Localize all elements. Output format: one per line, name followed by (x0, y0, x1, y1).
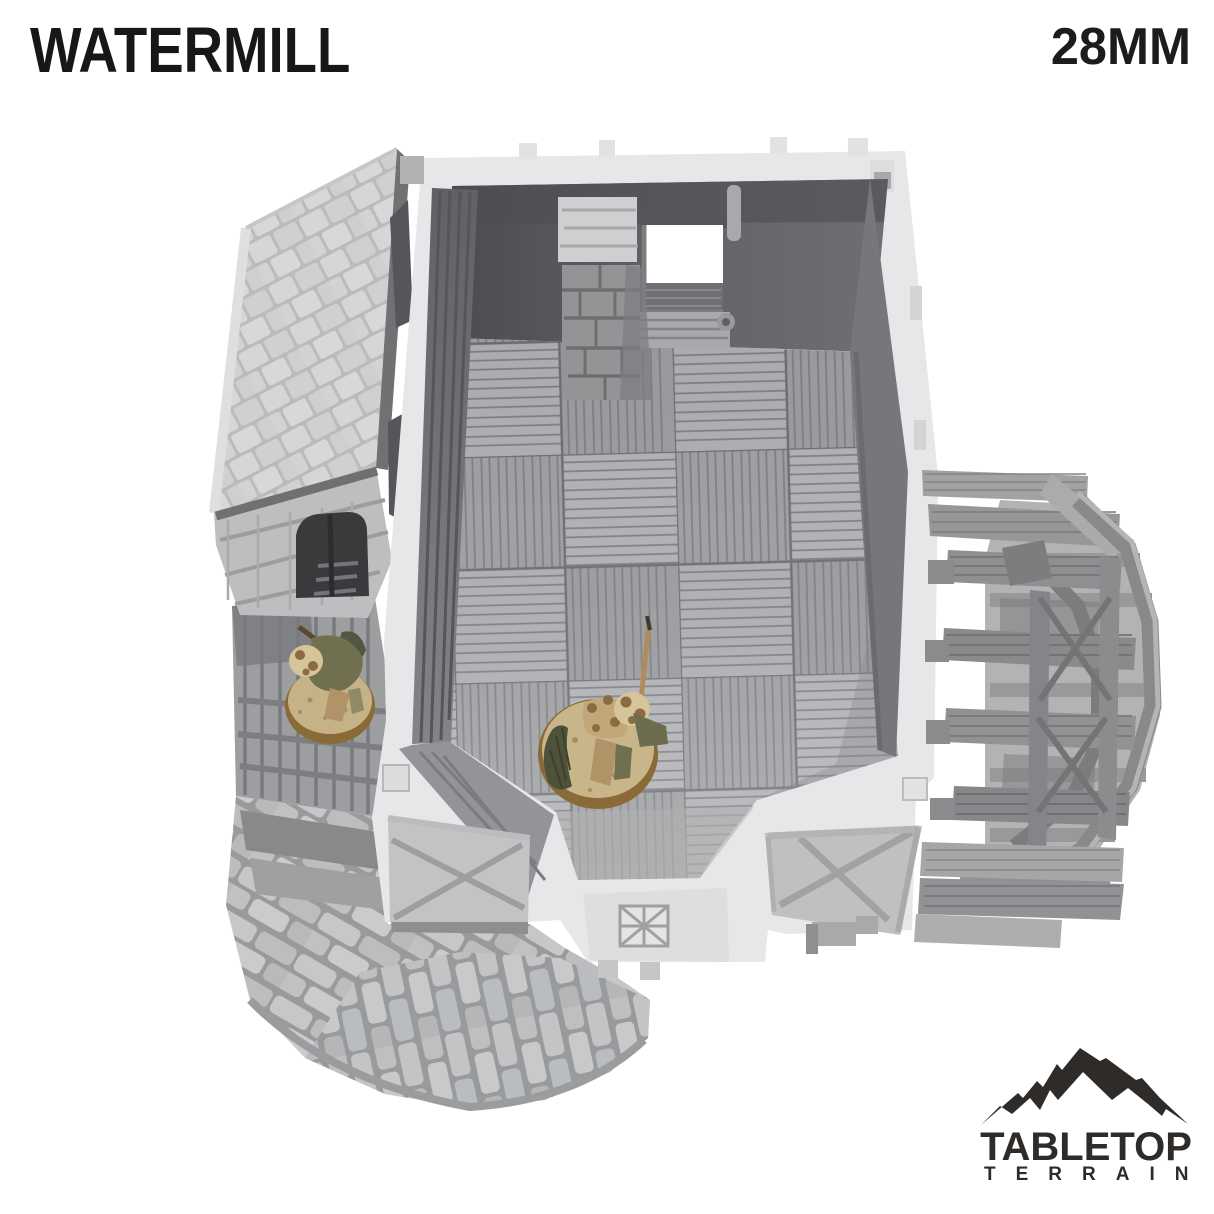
svg-text:28MM: 28MM (1051, 17, 1191, 75)
svg-text:TERRAIN: TERRAIN (984, 1164, 1208, 1185)
svg-text:WATERMILL: WATERMILL (30, 14, 350, 86)
svg-text:TABLETOP: TABLETOP (980, 1125, 1192, 1169)
